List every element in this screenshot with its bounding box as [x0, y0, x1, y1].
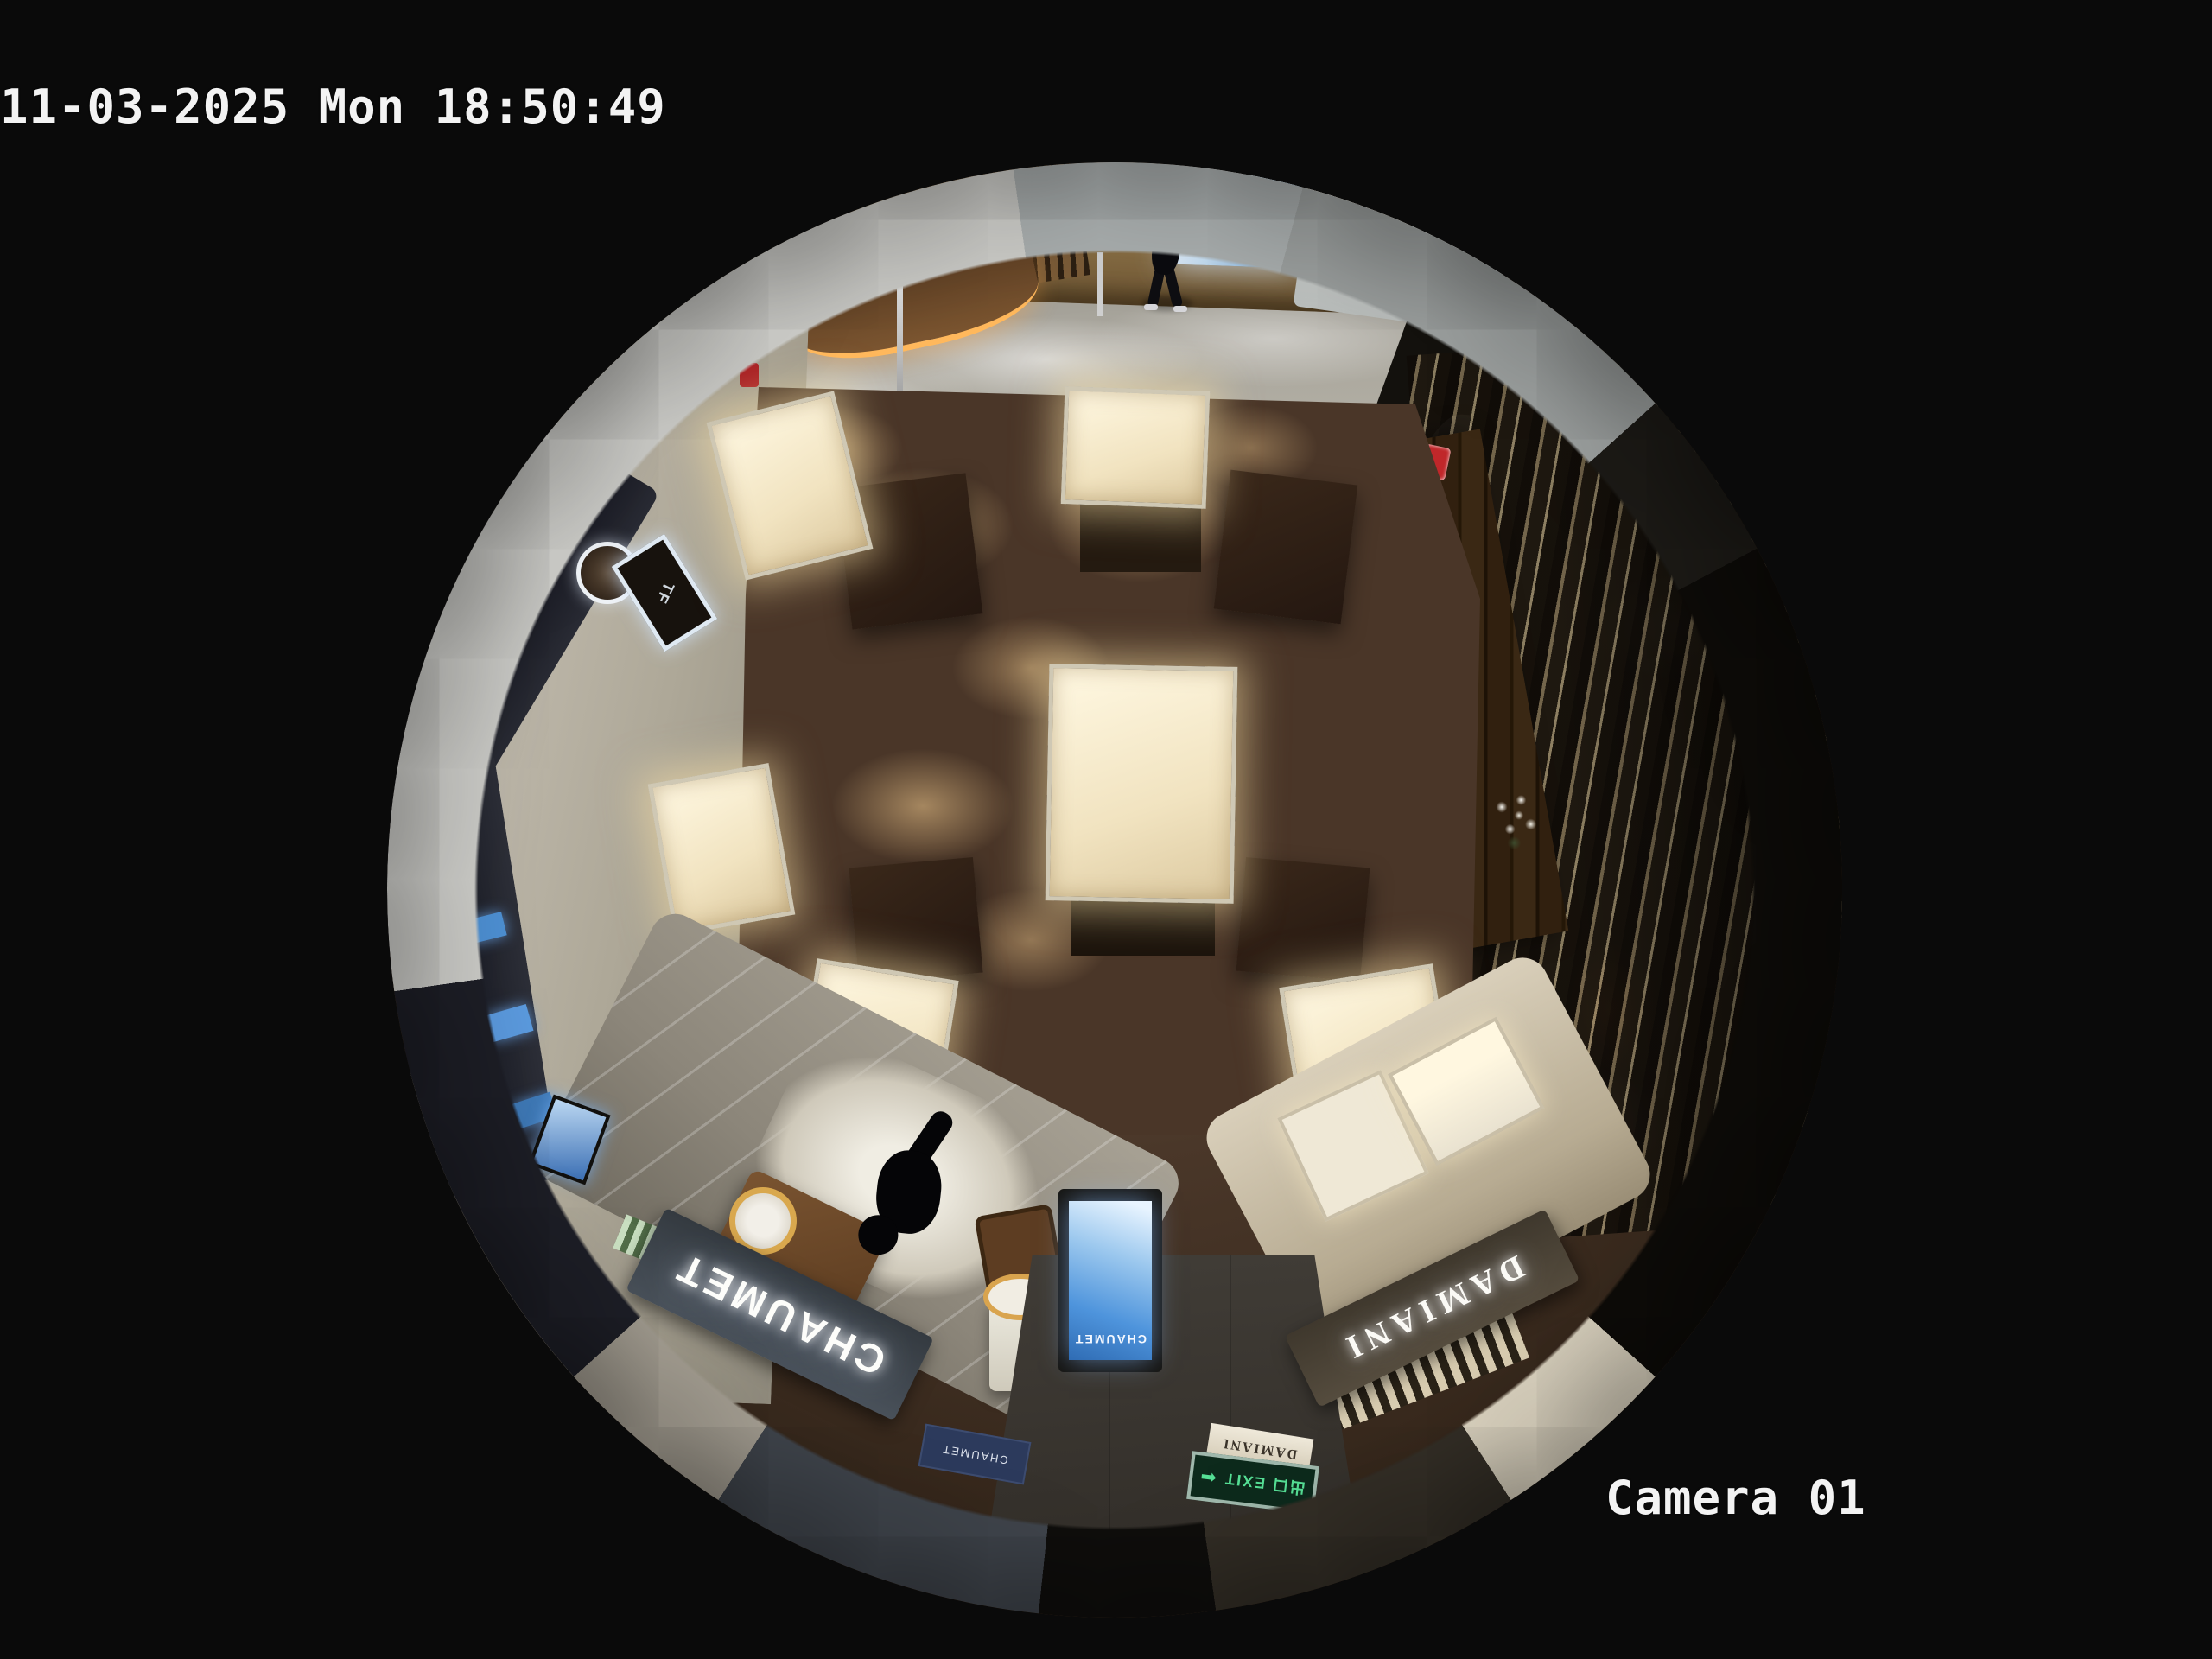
fisheye-vignette	[387, 162, 1842, 1618]
timestamp: 11-03-2025 Mon 18:50:49	[0, 79, 666, 134]
fisheye-view: TOM FORD TF	[387, 162, 1842, 1618]
camera-label: Camera 01	[1605, 1471, 1866, 1525]
cctv-frame: 11-03-2025 Mon 18:50:49 Camera 01	[0, 0, 2212, 1659]
